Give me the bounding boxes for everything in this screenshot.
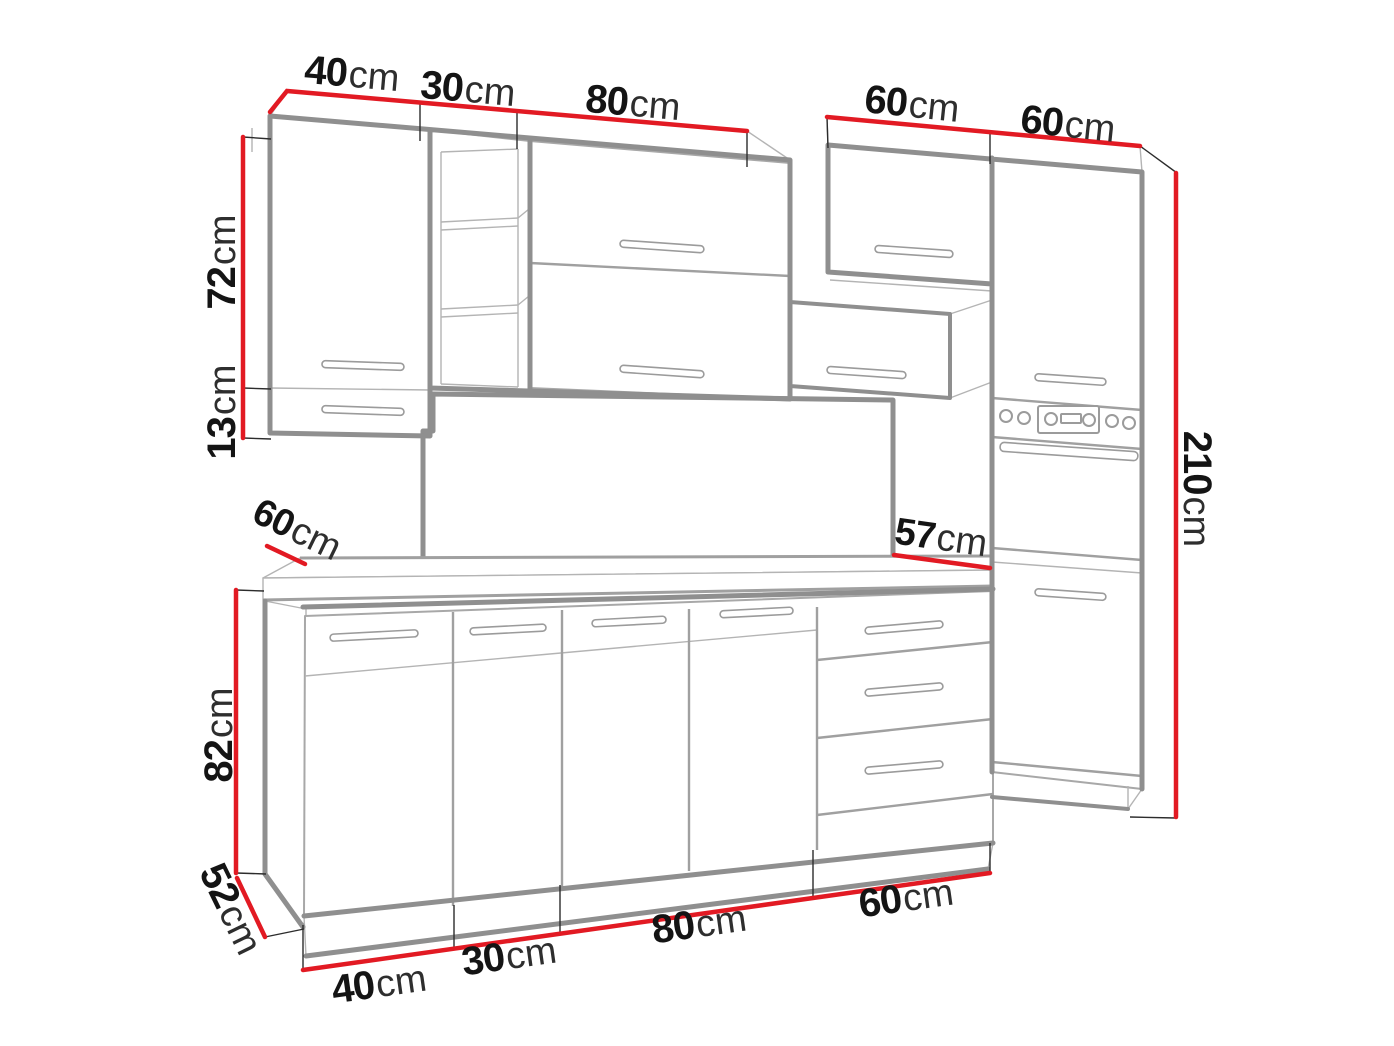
dim-tick	[243, 438, 271, 439]
dim-tick	[243, 137, 271, 139]
dim-label-82: 82cm	[199, 687, 239, 782]
dim-label-wall-80: 80cm	[584, 79, 682, 127]
dim-tick	[236, 590, 264, 591]
tall-plinth-bottom	[992, 797, 1128, 809]
dim-tick	[827, 117, 828, 148]
hood-cabinet-side	[950, 300, 992, 398]
dim-label-wall-40: 40cm	[303, 50, 401, 98]
wall-cabinet-60-front	[828, 145, 992, 284]
dim-label-wall-60a: 60cm	[863, 79, 962, 129]
dim-tick	[236, 873, 266, 874]
kitchen-dimension-diagram: 40cm 30cm 80cm 60cm 60cm 72cm 13cm 60cm …	[0, 0, 1394, 1046]
dim-label-72: 72cm	[202, 214, 242, 309]
tall-oven-cabinet-front	[992, 158, 1142, 789]
worktop-back-edge	[300, 556, 993, 558]
dim-label-wall-30: 30cm	[419, 65, 517, 113]
open-shelf-unit-30-front	[430, 130, 530, 390]
dim-label-13: 13cm	[202, 364, 242, 459]
tall-plinth-diag	[1128, 789, 1142, 809]
dim-label-wall-60b: 60cm	[1019, 99, 1118, 149]
dim-label-210: 210cm	[1177, 431, 1217, 547]
dim-tick	[243, 388, 271, 389]
dim-tick	[1130, 817, 1176, 818]
dim-tick	[265, 929, 304, 937]
dim-tick	[1140, 146, 1177, 173]
base-cabinets-side-panel	[265, 601, 306, 926]
splashback-panel	[423, 394, 893, 576]
hood-cabinet-front	[790, 302, 950, 398]
